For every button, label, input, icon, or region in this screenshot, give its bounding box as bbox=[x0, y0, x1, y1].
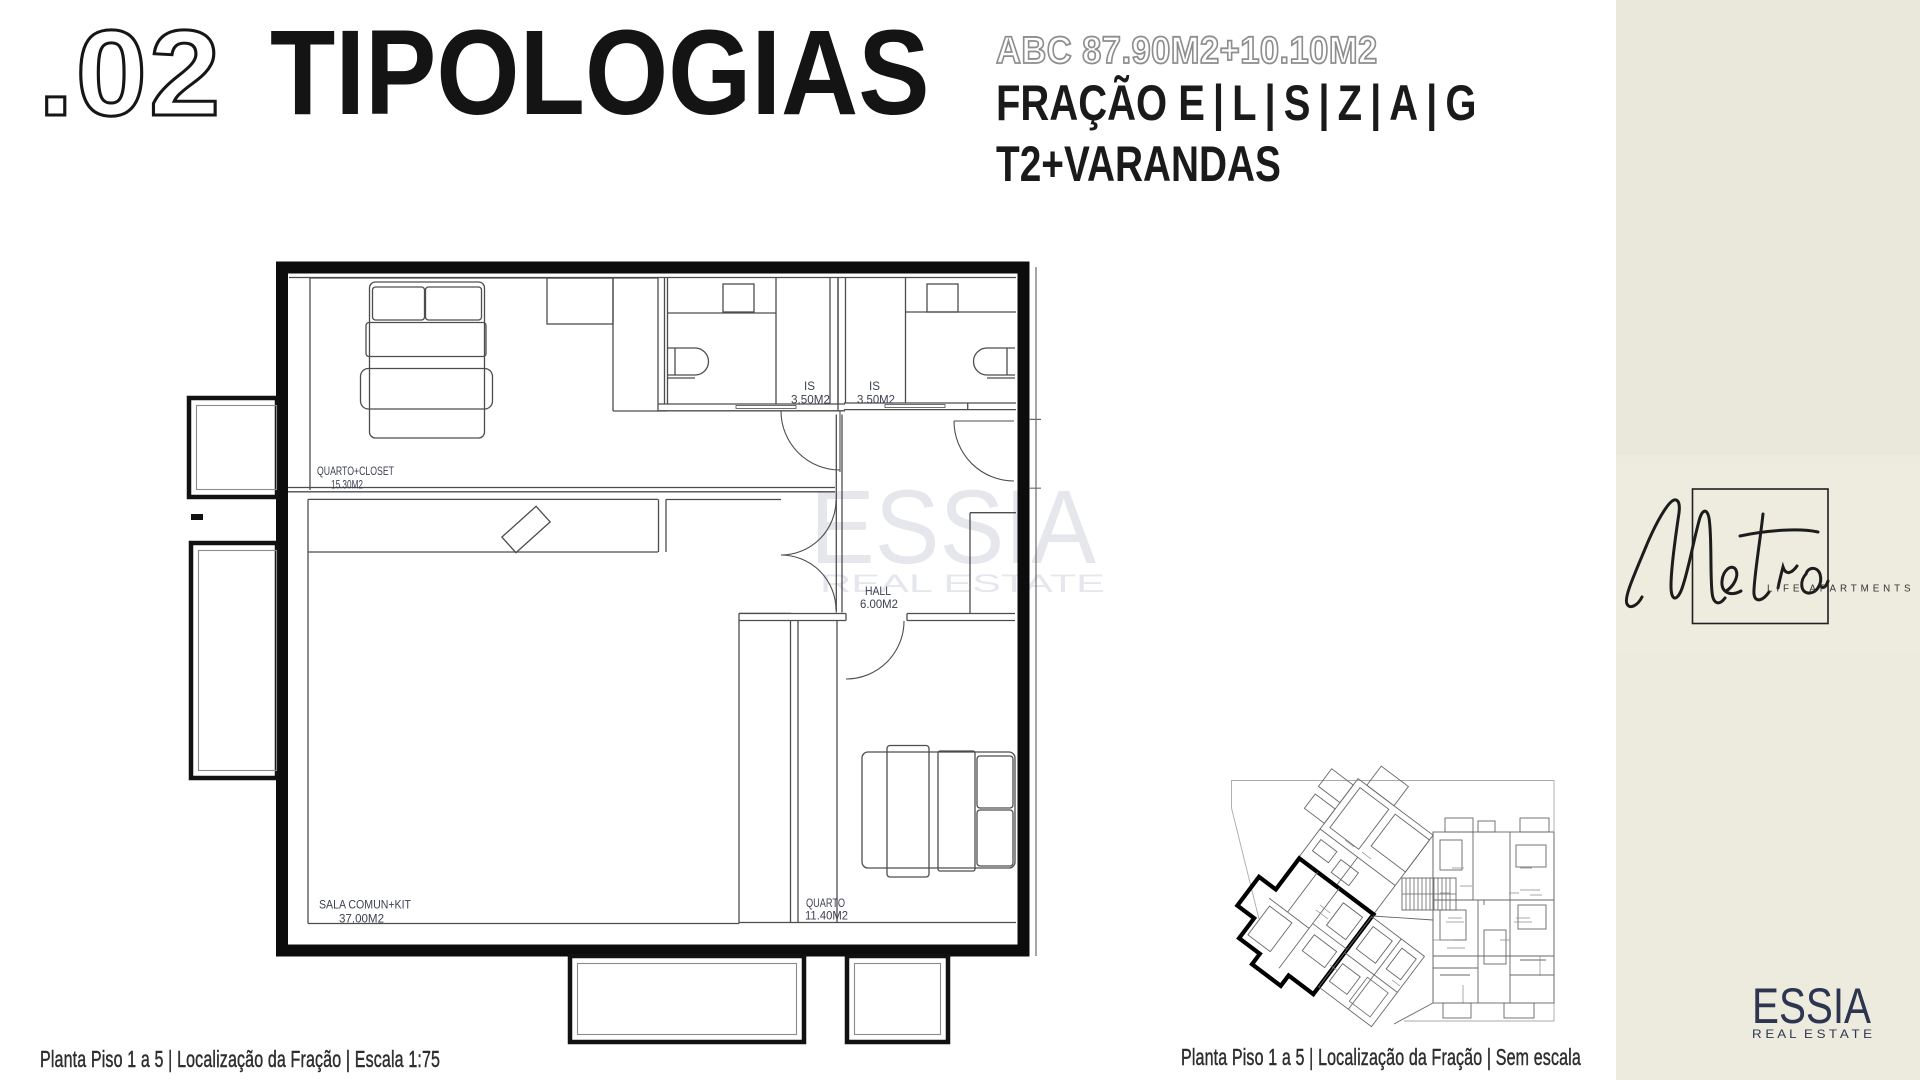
svg-text:IS: IS bbox=[869, 379, 880, 393]
svg-text:3.50M2: 3.50M2 bbox=[791, 393, 830, 407]
svg-text:3.50M2: 3.50M2 bbox=[857, 393, 895, 407]
svg-text:REAL ESTATE: REAL ESTATE bbox=[820, 570, 1105, 598]
svg-text:11.40M2: 11.40M2 bbox=[805, 909, 848, 923]
svg-text:SALA COMUN+KIT: SALA COMUN+KIT bbox=[319, 898, 412, 912]
svg-text:QUARTO+CLOSET: QUARTO+CLOSET bbox=[317, 464, 394, 478]
svg-text:IS: IS bbox=[804, 379, 815, 393]
svg-text:HALL: HALL bbox=[865, 584, 891, 598]
svg-text:R E A L E S T A T E: R E A L E S T A T E bbox=[1752, 1027, 1872, 1041]
svg-text:ESSIA: ESSIA bbox=[1752, 978, 1872, 1034]
svg-text:LIFE APARTMENTS: LIFE APARTMENTS bbox=[1767, 584, 1914, 595]
svg-text:37.00M2: 37.00M2 bbox=[339, 912, 384, 926]
svg-text:6.00M2: 6.00M2 bbox=[860, 597, 898, 611]
svg-text:15.30M2: 15.30M2 bbox=[331, 478, 363, 492]
svg-text:ESSIA: ESSIA bbox=[810, 469, 1096, 586]
